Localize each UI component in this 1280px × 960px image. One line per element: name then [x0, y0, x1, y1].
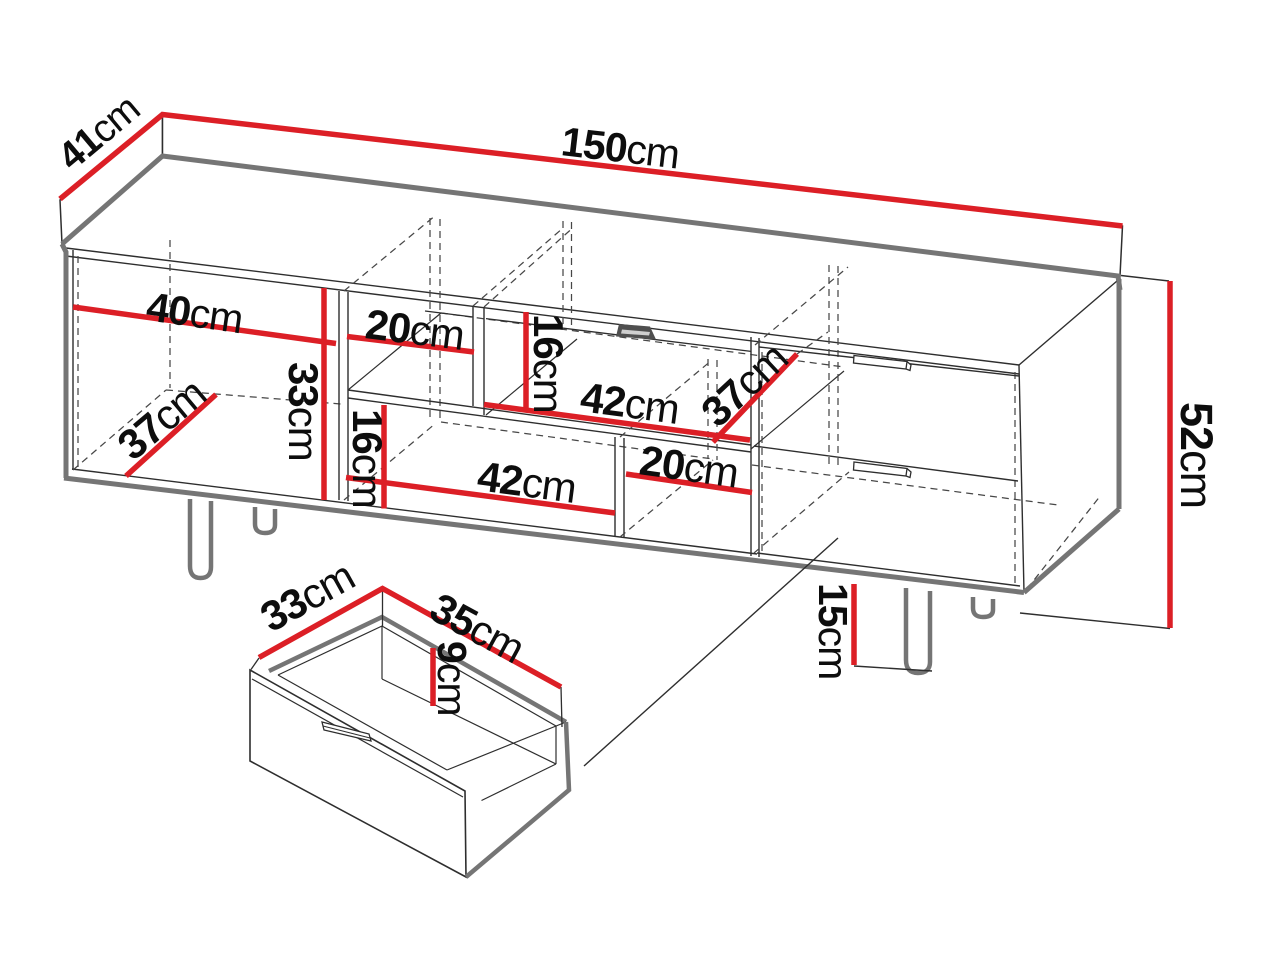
svg-text:16cm: 16cm	[525, 314, 572, 413]
svg-text:33cm: 33cm	[280, 362, 327, 461]
svg-text:15cm: 15cm	[810, 583, 856, 679]
svg-text:16cm: 16cm	[344, 409, 391, 508]
svg-text:9cm: 9cm	[429, 641, 475, 715]
svg-text:52cm: 52cm	[1171, 402, 1222, 508]
